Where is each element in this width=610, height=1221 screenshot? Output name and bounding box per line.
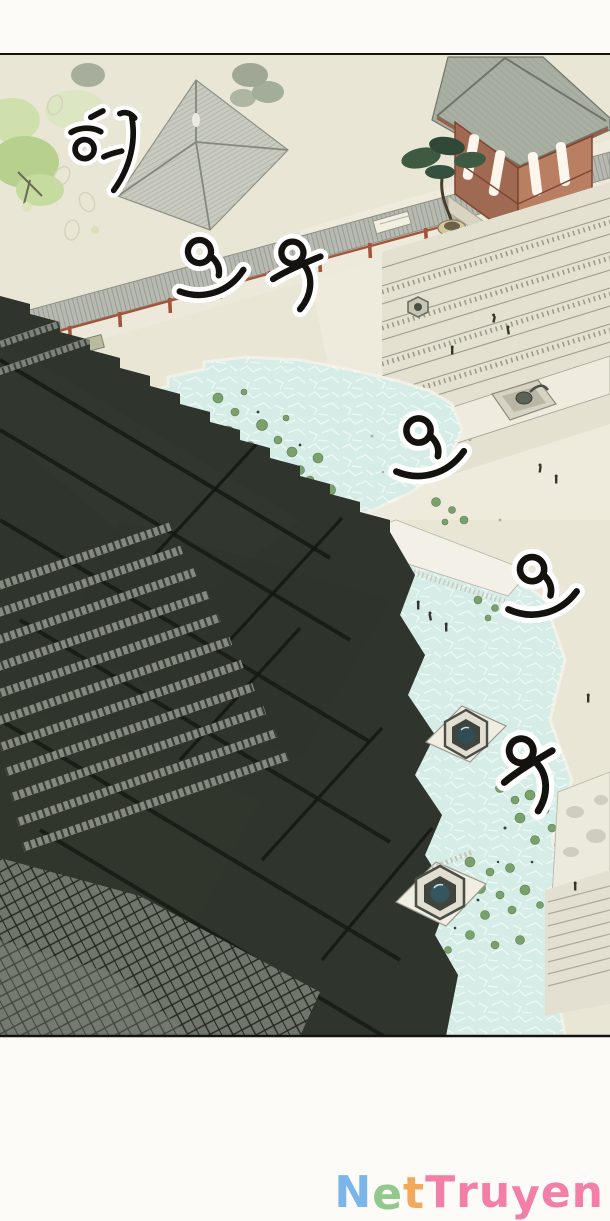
watermark-letter: t xyxy=(403,1172,425,1216)
watermark-letter: N xyxy=(334,1171,372,1215)
stairs-bottom-right xyxy=(545,870,610,1016)
watermark-letter: e xyxy=(541,1171,572,1215)
site-watermark: NetTruyen xyxy=(334,1171,604,1215)
watermark-letter: e xyxy=(372,1173,403,1217)
manhwa-panel-canvas: 휘 오 우 오 오 우 xyxy=(0,0,610,1221)
watermark-letter: u xyxy=(479,1171,511,1215)
hex-ornament xyxy=(408,297,428,317)
watermark-letter: T xyxy=(425,1171,456,1215)
watermark-letter: n xyxy=(572,1171,604,1215)
panel-illustration: 휘 오 우 오 오 우 xyxy=(0,0,610,1221)
watermark-letter: r xyxy=(456,1171,479,1215)
watermark-letter: y xyxy=(511,1174,541,1218)
